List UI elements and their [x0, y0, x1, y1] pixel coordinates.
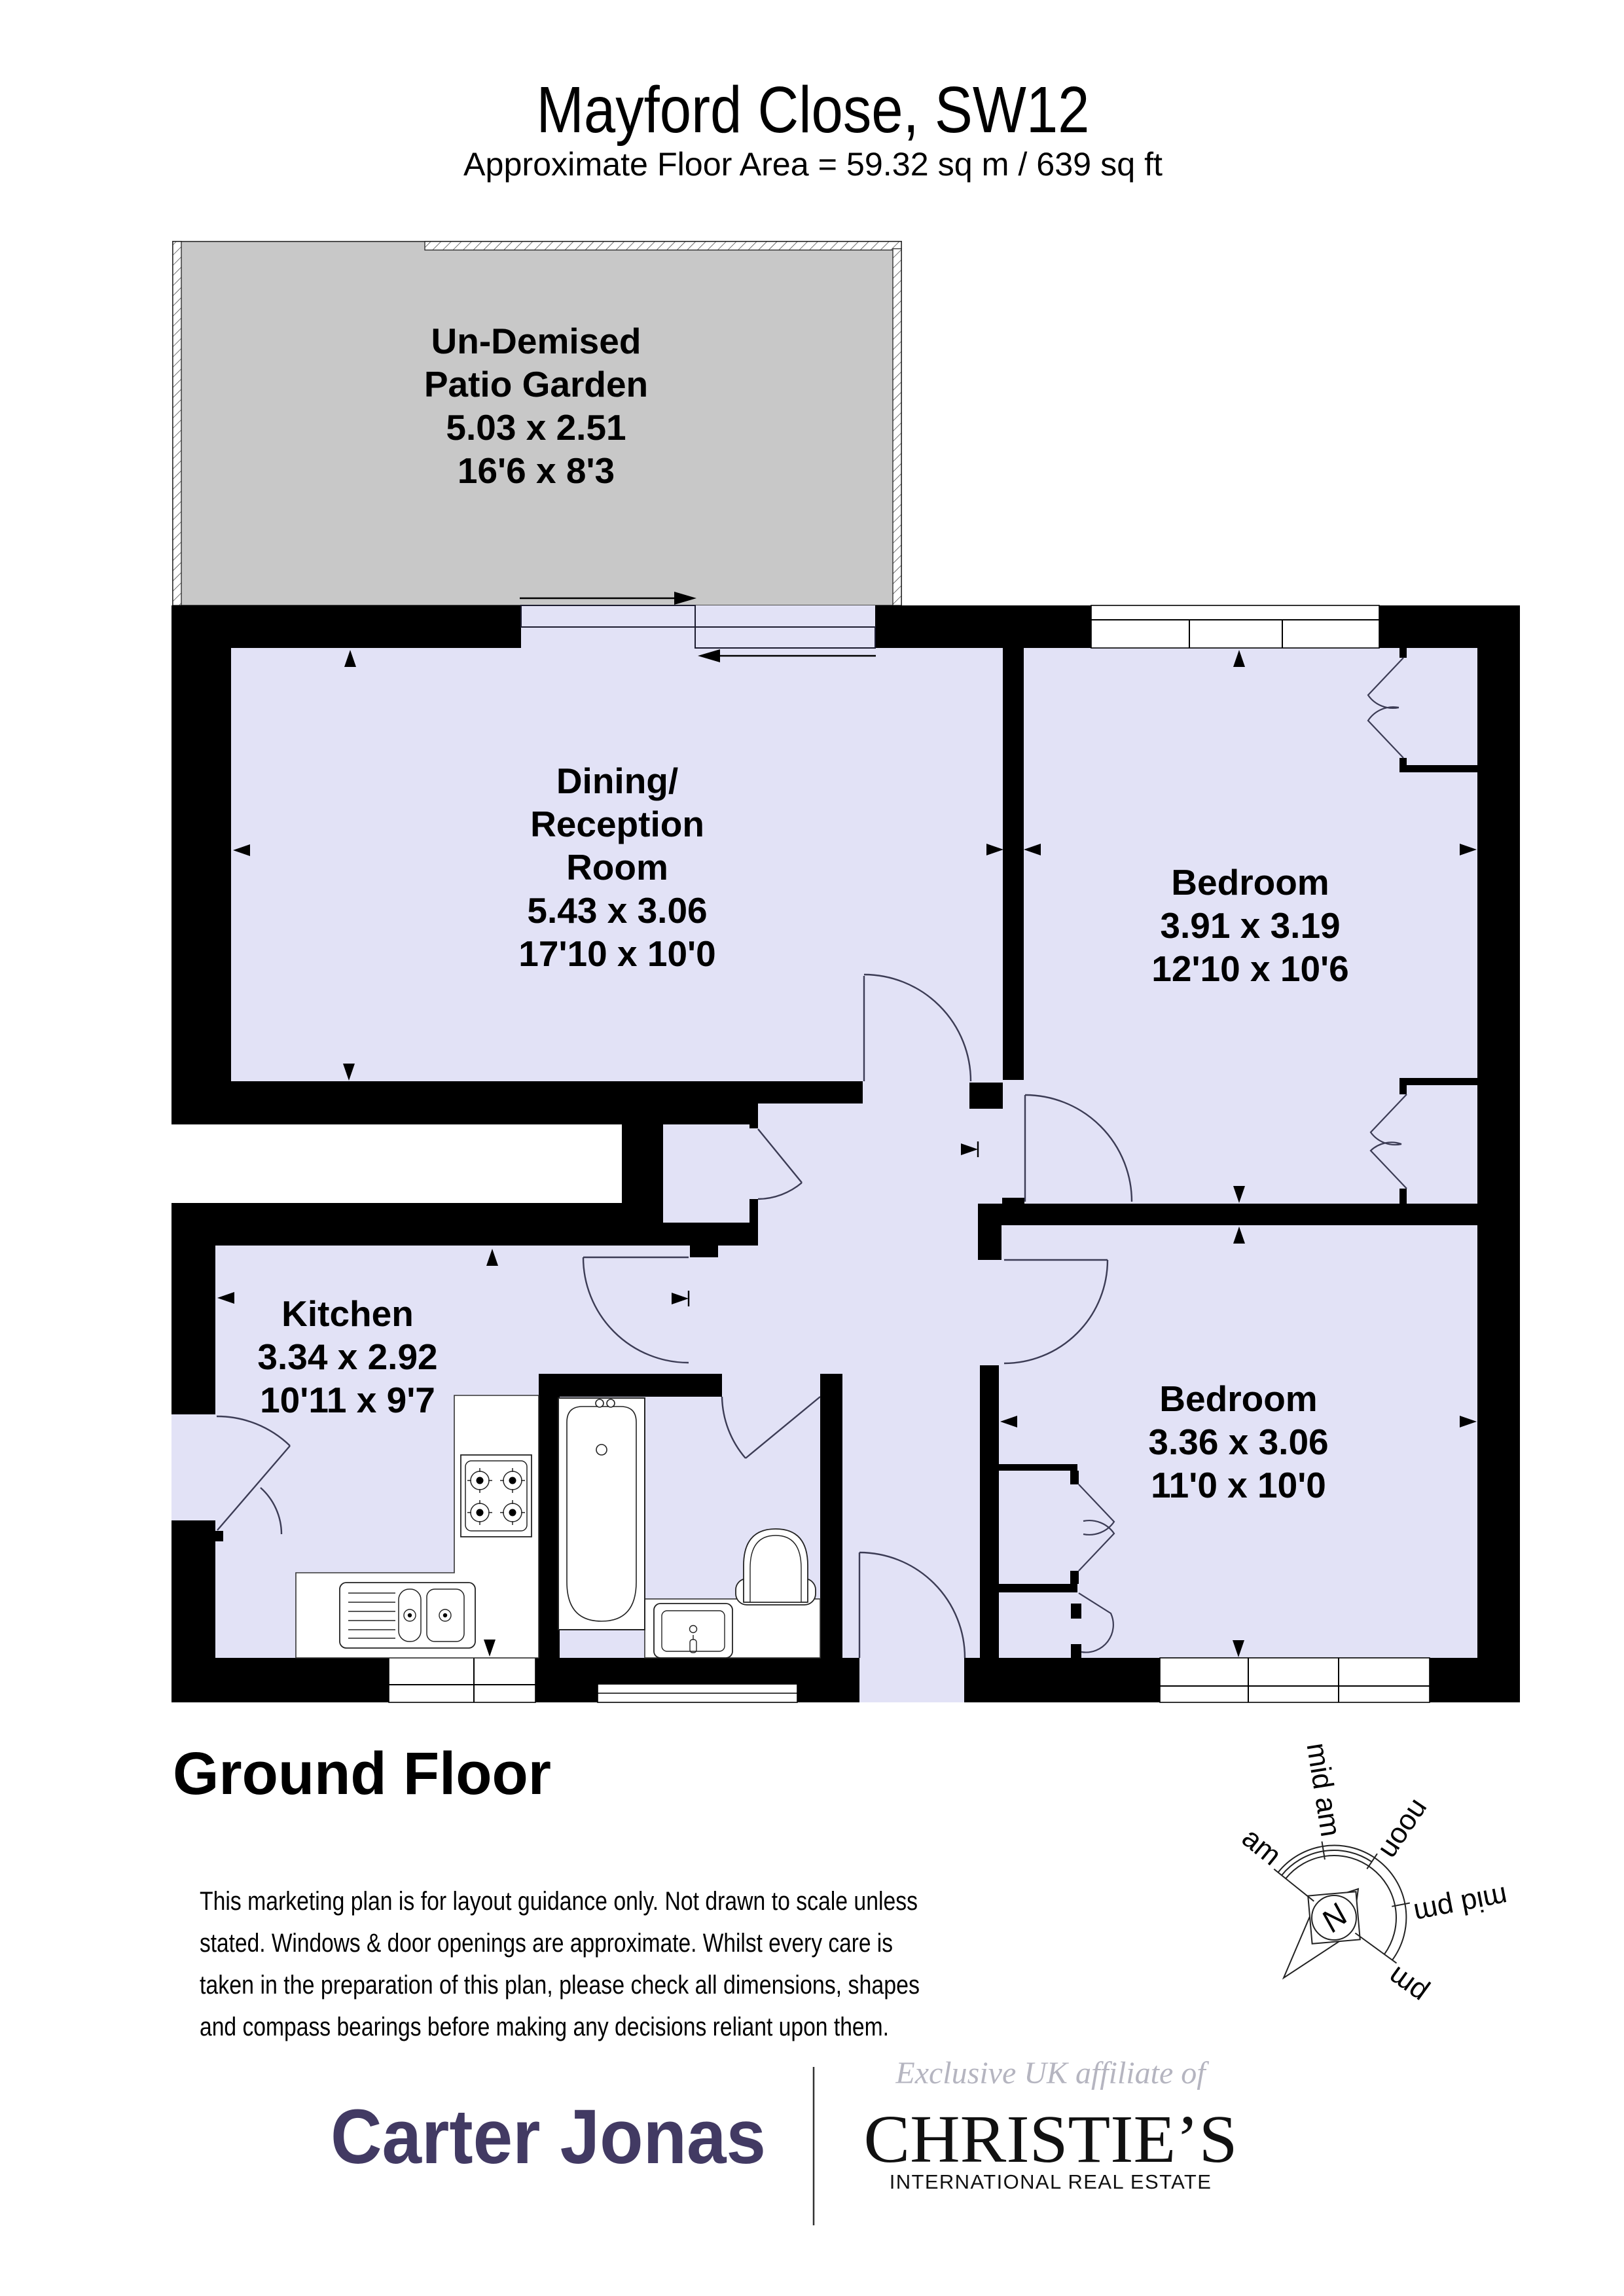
svg-text:10'11 x 9'7: 10'11 x 9'7 [260, 1380, 435, 1420]
svg-text:Dining/: Dining/ [556, 761, 678, 801]
svg-text:Bedroom: Bedroom [1159, 1378, 1317, 1419]
svg-text:12'10 x 10'6: 12'10 x 10'6 [1151, 948, 1348, 989]
svg-text:taken in the preparation of th: taken in the preparation of this plan, p… [200, 1971, 920, 2000]
svg-text:3.36 x 3.06: 3.36 x 3.06 [1148, 1422, 1328, 1462]
svg-text:Bedroom: Bedroom [1171, 862, 1329, 903]
svg-text:Approximate Floor Area = 59.32: Approximate Floor Area = 59.32 sq m / 63… [463, 146, 1163, 183]
svg-text:Ground Floor: Ground Floor [173, 1740, 551, 1807]
svg-text:This marketing plan is for lay: This marketing plan is for layout guidan… [200, 1887, 918, 1916]
svg-text:Patio Garden: Patio Garden [424, 364, 648, 404]
svg-text:17'10 x 10'0: 17'10 x 10'0 [518, 933, 715, 974]
svg-text:INTERNATIONAL REAL ESTATE: INTERNATIONAL REAL ESTATE [890, 2170, 1212, 2193]
svg-text:Reception: Reception [530, 804, 704, 844]
svg-text:Kitchen: Kitchen [281, 1293, 414, 1334]
svg-text:Mayford Close, SW12: Mayford Close, SW12 [537, 73, 1090, 147]
svg-text:11'0 x 10'0: 11'0 x 10'0 [1151, 1465, 1326, 1505]
svg-text:stated. Windows & door opening: stated. Windows & door openings are appr… [200, 1929, 893, 1958]
svg-text:Carter Jonas: Carter Jonas [331, 2094, 766, 2180]
svg-text:3.34 x 2.92: 3.34 x 2.92 [257, 1336, 437, 1377]
svg-text:3.91 x 3.19: 3.91 x 3.19 [1160, 905, 1340, 946]
svg-text:5.03 x 2.51: 5.03 x 2.51 [446, 407, 626, 448]
svg-text:and compass bearings before ma: and compass bearings before making any d… [200, 2013, 889, 2041]
svg-text:Room: Room [566, 847, 668, 888]
svg-text:Exclusive UK affiliate of: Exclusive UK affiliate of [895, 2056, 1209, 2090]
svg-text:16'6 x 8'3: 16'6 x 8'3 [458, 450, 615, 491]
svg-text:Un-Demised: Un-Demised [431, 321, 641, 361]
svg-text:5.43 x 3.06: 5.43 x 3.06 [527, 890, 707, 931]
svg-text:CHRISTIE’S: CHRISTIE’S [864, 2102, 1238, 2177]
